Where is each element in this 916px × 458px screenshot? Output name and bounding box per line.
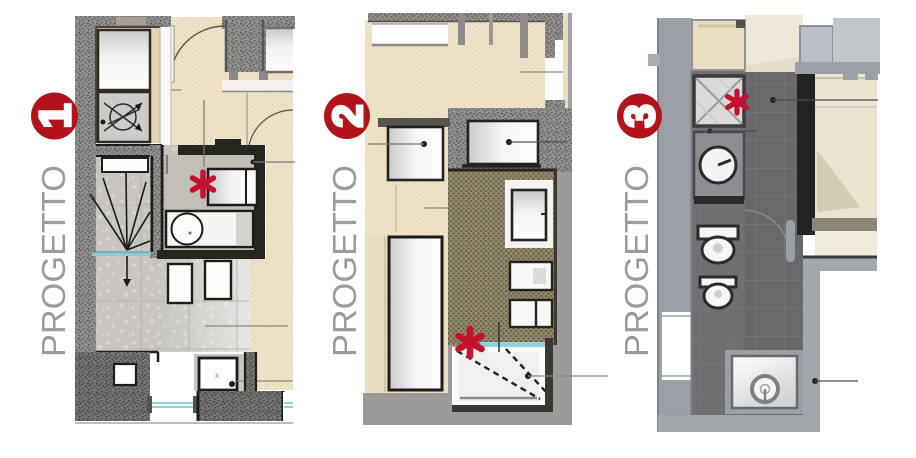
svg-text:1: 1	[31, 104, 80, 128]
svg-text:PROGETTO: PROGETTO	[326, 165, 363, 357]
svg-text:2: 2	[324, 104, 371, 127]
svg-text:x: x	[215, 371, 219, 380]
svg-text:PROGETTO: PROGETTO	[618, 165, 655, 357]
svg-text:PROGETTO: PROGETTO	[35, 165, 72, 357]
svg-text:3: 3	[616, 104, 663, 127]
